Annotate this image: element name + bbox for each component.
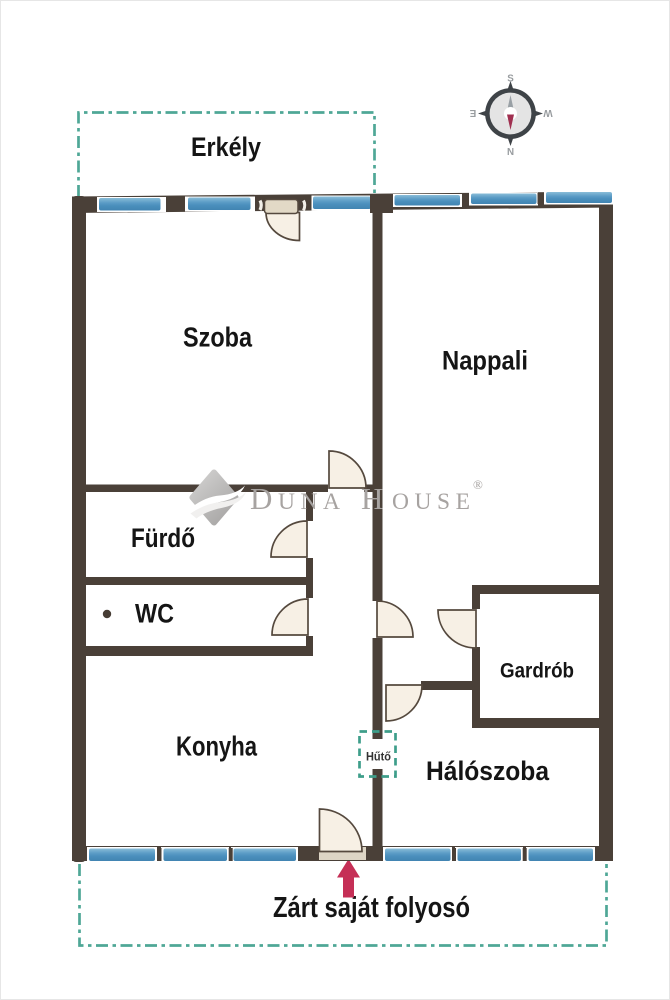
svg-text:N: N (507, 147, 514, 158)
svg-text:Gardrób: Gardrób (500, 660, 574, 683)
svg-text:Konyha: Konyha (176, 731, 257, 762)
svg-text:Erkély: Erkély (191, 132, 261, 162)
svg-text:OUSE: OUSE (392, 489, 470, 515)
svg-text:Hűtő: Hűtő (366, 752, 391, 764)
svg-text:WC: WC (135, 599, 174, 629)
svg-text:Nappali: Nappali (442, 346, 528, 376)
svg-text:D: D (250, 481, 272, 516)
svg-text:UNA: UNA (278, 489, 340, 515)
svg-text:Zárt saját folyosó: Zárt saját folyosó (273, 892, 470, 924)
svg-text:E: E (469, 107, 476, 118)
svg-text:S: S (507, 74, 514, 85)
svg-text:W: W (543, 107, 553, 118)
svg-text:H: H (361, 481, 383, 516)
svg-text:Fürdő: Fürdő (131, 523, 195, 553)
svg-text:Hálószoba: Hálószoba (426, 756, 550, 786)
svg-text:Szoba: Szoba (183, 322, 252, 353)
svg-text:®: ® (473, 477, 483, 492)
